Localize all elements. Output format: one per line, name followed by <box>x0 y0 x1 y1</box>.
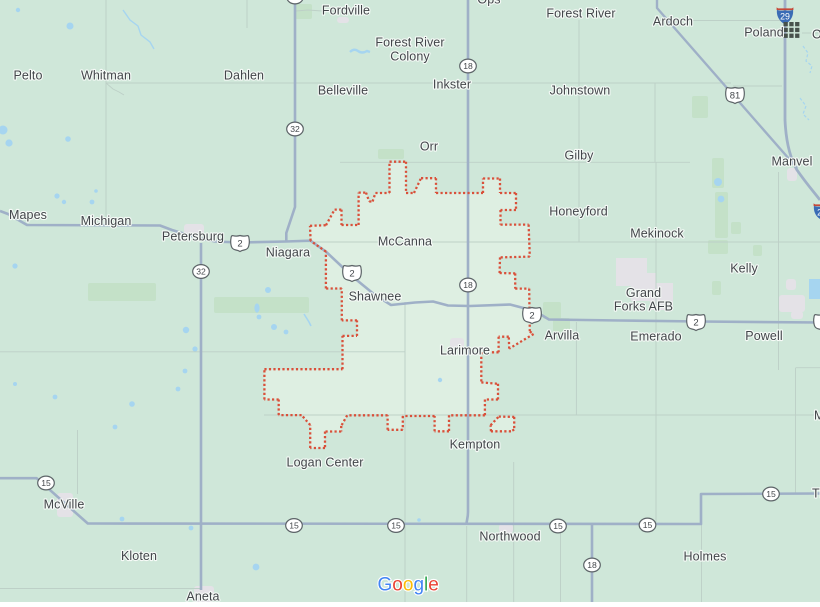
svg-text:Kelly: Kelly <box>730 261 758 275</box>
svg-text:McCanna: McCanna <box>378 234 432 248</box>
svg-text:Thompson: Thompson <box>812 486 820 500</box>
svg-text:Grand: Grand <box>626 286 661 300</box>
svg-text:Forks AFB: Forks AFB <box>614 299 673 313</box>
svg-text:2: 2 <box>693 318 698 329</box>
svg-text:Shawnee: Shawnee <box>349 289 402 303</box>
svg-text:29: 29 <box>780 12 790 22</box>
svg-text:Colony: Colony <box>390 49 430 63</box>
svg-text:Larimore: Larimore <box>440 343 490 357</box>
svg-text:Gilby: Gilby <box>565 148 595 162</box>
svg-text:Mekinock: Mekinock <box>630 226 684 240</box>
svg-text:18: 18 <box>463 280 473 290</box>
svg-text:Honeyford: Honeyford <box>549 204 608 218</box>
svg-text:Pelto: Pelto <box>14 68 43 82</box>
svg-text:15: 15 <box>391 521 401 531</box>
svg-text:Ardoch: Ardoch <box>653 14 693 28</box>
svg-text:15: 15 <box>289 521 299 531</box>
svg-text:Manvel: Manvel <box>772 154 813 168</box>
svg-text:McVille: McVille <box>44 497 85 511</box>
svg-text:Michigan: Michigan <box>81 214 132 228</box>
svg-text:Niagara: Niagara <box>266 245 310 259</box>
svg-text:Mc: Mc <box>814 408 820 422</box>
svg-text:Powell: Powell <box>745 329 782 343</box>
svg-text:15: 15 <box>643 520 653 530</box>
svg-text:Orr: Orr <box>420 139 438 153</box>
svg-text:Kloten: Kloten <box>121 549 157 563</box>
svg-text:Inkster: Inkster <box>433 77 471 91</box>
svg-text:Ops: Ops <box>477 0 500 6</box>
svg-text:Northwood: Northwood <box>479 529 540 543</box>
svg-text:32: 32 <box>196 267 206 277</box>
svg-text:2: 2 <box>237 239 242 250</box>
svg-text:Arvilla: Arvilla <box>545 328 580 342</box>
svg-text:Mapes: Mapes <box>9 208 47 222</box>
svg-text:Forest River: Forest River <box>375 35 444 49</box>
svg-text:Belleville: Belleville <box>318 83 368 97</box>
svg-text:2: 2 <box>349 269 354 280</box>
svg-text:18: 18 <box>587 560 597 570</box>
svg-text:Fordville: Fordville <box>322 3 370 17</box>
svg-text:32: 32 <box>290 0 300 2</box>
svg-text:Forest River: Forest River <box>546 6 615 20</box>
svg-text:Ojata: Ojata <box>812 27 820 41</box>
svg-text:Petersburg: Petersburg <box>162 229 224 243</box>
svg-text:15: 15 <box>553 521 563 531</box>
svg-text:32: 32 <box>290 124 300 134</box>
svg-text:Whitman: Whitman <box>81 68 131 82</box>
svg-text:Johnstown: Johnstown <box>550 83 611 97</box>
svg-text:18: 18 <box>463 61 473 71</box>
svg-text:Google: Google <box>378 575 439 596</box>
svg-text:81: 81 <box>730 91 741 102</box>
svg-text:Kempton: Kempton <box>450 437 501 451</box>
svg-text:Emerado: Emerado <box>630 329 681 343</box>
svg-text:Aneta: Aneta <box>186 589 219 602</box>
svg-text:Holmes: Holmes <box>684 549 727 563</box>
svg-text:2: 2 <box>529 311 534 322</box>
svg-text:15: 15 <box>766 489 776 499</box>
svg-text:Logan Center: Logan Center <box>287 455 364 469</box>
svg-text:Poland: Poland <box>744 25 784 39</box>
svg-text:15: 15 <box>41 478 51 488</box>
svg-text:Dahlen: Dahlen <box>224 68 264 82</box>
